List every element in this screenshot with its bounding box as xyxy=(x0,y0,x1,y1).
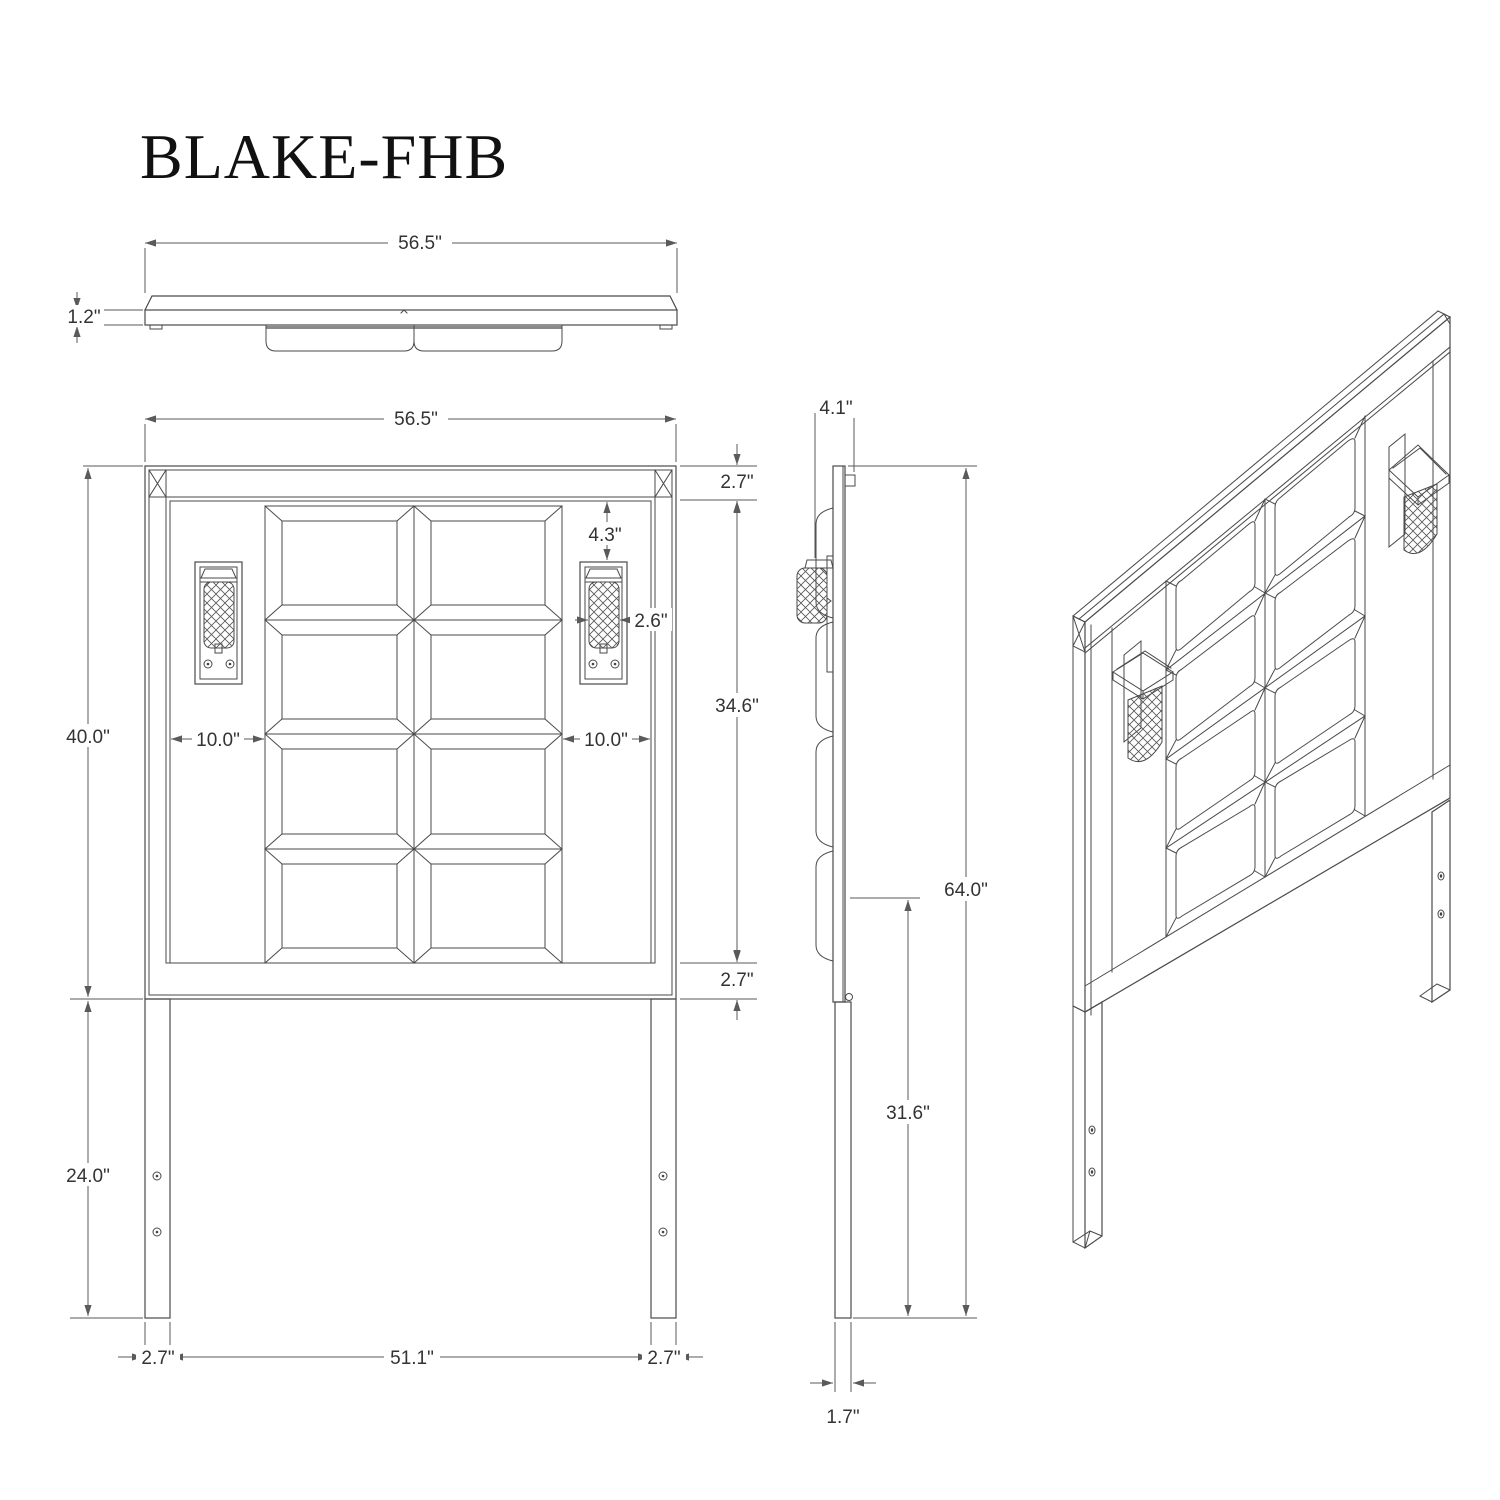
dim-front-top-rail: 2.7" xyxy=(720,472,753,493)
iso-sconce-left xyxy=(1113,641,1173,762)
leg-right xyxy=(651,999,676,1318)
sconce-left xyxy=(195,562,242,684)
dim-front-bottom-rail: 2.7" xyxy=(720,970,753,991)
dim-front-margin-left: 2.7" xyxy=(141,1348,174,1369)
sconce-side-profile xyxy=(797,556,833,672)
dim-side-total-height: 64.0" xyxy=(944,880,988,901)
blueprint-canvas: BLAKE-FHB 56.5" 1.2" 56.5" xyxy=(0,0,1500,1500)
dim-front-leg-length: 24.0" xyxy=(66,1166,110,1187)
leg-left xyxy=(145,999,170,1318)
dim-side-depth: 4.1" xyxy=(819,398,852,419)
dim-front-bottom-span: 51.1" xyxy=(390,1348,434,1369)
dim-side-leg-thickness: 1.7" xyxy=(826,1407,859,1428)
sconce-right xyxy=(580,562,627,684)
dim-top-width: 56.5" xyxy=(398,233,442,254)
dim-front-sconce-drop: 4.3" xyxy=(588,525,621,546)
corner-block-right xyxy=(655,470,672,497)
corner-block-left xyxy=(149,470,166,497)
dim-front-gap-right: 10.0" xyxy=(584,730,628,751)
drawing-sheet: BLAKE-FHB 56.5" 1.2" 56.5" xyxy=(0,0,1500,1500)
dim-side-rail-height: 31.6" xyxy=(886,1103,930,1124)
dim-front-margin-right: 2.7" xyxy=(647,1348,680,1369)
top-view: 56.5" 1.2" xyxy=(62,228,677,351)
iso-leg-right xyxy=(1420,800,1450,1002)
dim-front-width: 56.5" xyxy=(394,409,438,430)
dim-front-inner-height: 34.6" xyxy=(715,696,759,717)
side-view: 4.1" 64.0" 31.6" xyxy=(797,396,994,1428)
page-title: BLAKE-FHB xyxy=(140,121,508,192)
dim-front-panel-height: 40.0" xyxy=(66,727,110,748)
dim-front-gap-left: 10.0" xyxy=(196,730,240,751)
dim-top-thickness: 1.2" xyxy=(67,307,100,328)
panel-grid xyxy=(265,506,562,963)
iso-leg-left xyxy=(1073,1002,1102,1248)
front-view: 56.5" xyxy=(61,404,765,1369)
isometric-view xyxy=(1073,311,1450,1248)
dim-front-sconce-width: 2.6" xyxy=(634,611,667,632)
iso-sconce-right xyxy=(1389,434,1449,554)
